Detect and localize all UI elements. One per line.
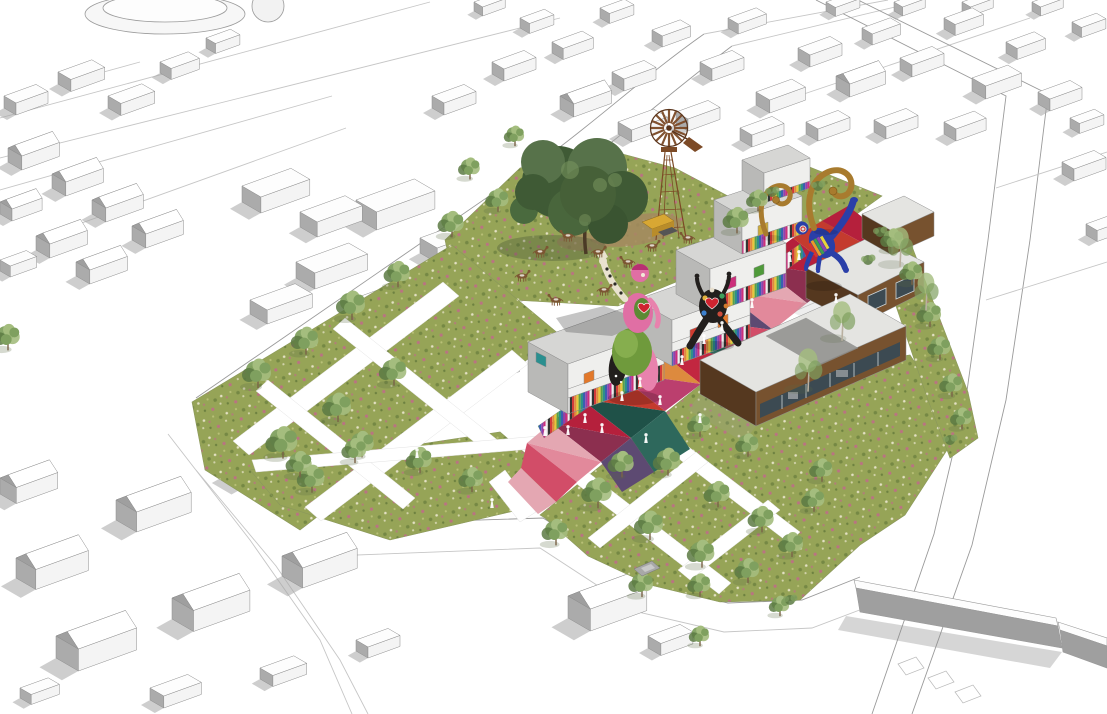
rendering-canvas: Bird's-eye architectural collage: white …: [0, 0, 1107, 714]
aerial-rendering: Aerial perspective rendering of a neighb…: [0, 0, 1107, 714]
